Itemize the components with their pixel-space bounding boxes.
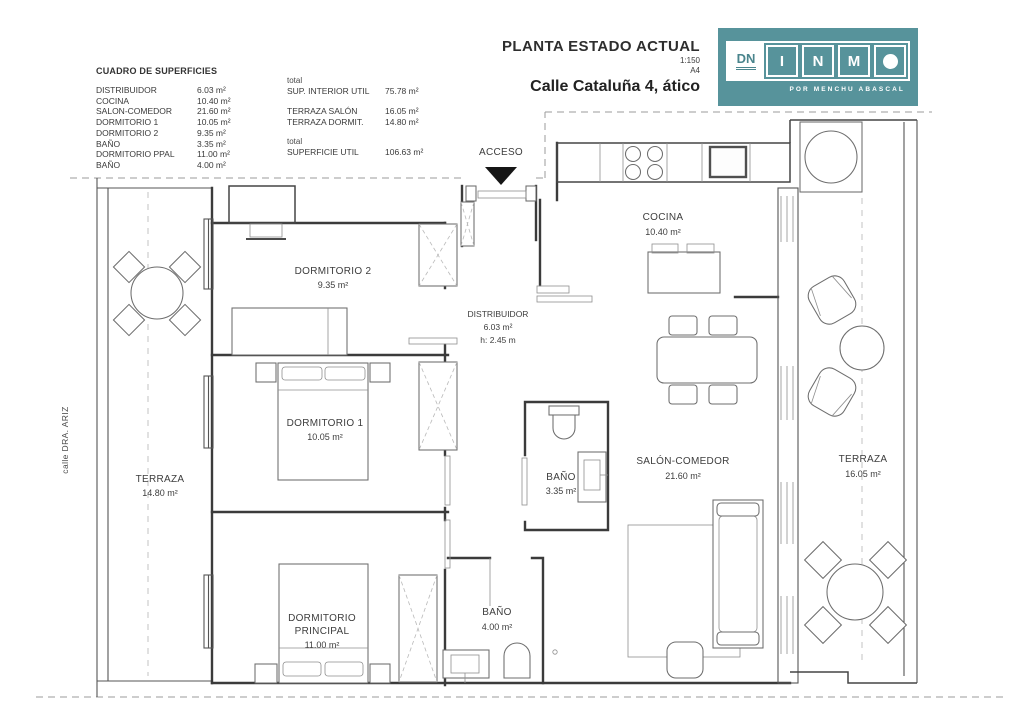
wardrobe-icon — [409, 224, 457, 344]
acceso-entry: ACCESO — [461, 147, 536, 246]
door-leaf — [522, 458, 527, 505]
room-area: 6.03 m² — [484, 322, 513, 332]
door-leaf — [445, 520, 450, 568]
room-height: h: 2.45 m — [480, 335, 515, 345]
room-dormitorio-2: DORMITORIO 2 9.35 m² — [232, 224, 457, 355]
dining-table-icon — [657, 316, 757, 404]
kitchen-island-icon — [648, 244, 720, 293]
room-label: BAÑO — [546, 470, 576, 483]
kitchen-sink-icon — [710, 147, 746, 177]
toilet-icon — [549, 406, 579, 439]
nightstand-icon — [370, 363, 390, 382]
entry-door-icon — [478, 191, 526, 198]
room-label: PRINCIPAL — [295, 626, 350, 637]
stove-icon — [626, 147, 663, 180]
door-jamb — [526, 186, 536, 201]
room-label: TERRAZA — [839, 454, 888, 465]
acceso-label: ACCESO — [479, 147, 523, 158]
sofa-icon — [713, 500, 763, 648]
acceso-arrow-icon — [485, 167, 517, 185]
room-salon-comedor: SALÓN-COMEDOR 21.60 m² — [628, 316, 763, 678]
room-bano-1: BAÑO 3.35 m² — [522, 406, 608, 505]
room-area: 21.60 m² — [665, 471, 701, 481]
nightstand-icon — [255, 664, 277, 683]
room-area: 9.35 m² — [318, 280, 349, 290]
door-leaf — [445, 456, 450, 505]
round-table-icon — [113, 251, 200, 335]
sink-icon — [443, 650, 489, 683]
nightstand-icon — [370, 664, 390, 683]
room-label: SALÓN-COMEDOR — [636, 454, 729, 467]
room-area: 14.80 m² — [142, 488, 178, 498]
room-area: 3.35 m² — [546, 486, 577, 496]
room-label: TERRAZA — [136, 474, 185, 485]
bed-icon — [232, 308, 347, 355]
nightstand-icon — [256, 363, 276, 382]
room-cocina: COCINA 10.40 m² — [557, 143, 790, 293]
room-label: DISTRIBUIDOR — [468, 309, 529, 319]
floor-plan-drawing: calle DRA. ARIZ TERRAZA 14.80 m² — [0, 0, 1024, 724]
room-distribuidor: DISTRIBUIDOR 6.03 m² h: 2.45 m — [468, 286, 592, 345]
room-area: 10.40 m² — [645, 227, 681, 237]
room-dormitorio-1: DORMITORIO 1 10.05 m² — [256, 362, 457, 505]
room-label: DORMITORIO 1 — [287, 418, 364, 429]
sink-icon — [578, 452, 608, 502]
round-table-icon — [805, 542, 907, 644]
wardrobe-icon — [399, 575, 437, 682]
room-label: DORMITORIO 2 — [295, 266, 372, 277]
room-area: 11.00 m² — [305, 640, 340, 650]
door-jamb — [466, 186, 476, 201]
room-dormitorio-principal: DORMITORIO PRINCIPAL 11.00 m² — [255, 520, 450, 683]
room-label: BAÑO — [482, 605, 512, 618]
wardrobe-icon — [419, 362, 457, 450]
washing-machine-icon — [800, 122, 862, 192]
terraza-salon: TERRAZA 16.05 m² — [790, 120, 917, 683]
floor-plan-sheet: CUADRO DE SUPERFICIES DISTRIBUIDOR6.03 m… — [0, 0, 1024, 724]
room-label: COCINA — [643, 212, 684, 223]
side-table-icon — [840, 326, 884, 370]
street-label: calle DRA. ARIZ — [60, 406, 70, 473]
terraza-dormitorios: TERRAZA 14.80 m² — [97, 178, 212, 697]
glazed-wall — [778, 188, 798, 683]
kitchen-counter-icon — [557, 143, 790, 182]
desk-icon — [246, 224, 286, 239]
room-label: DORMITORIO — [288, 613, 356, 624]
lounge-chair-icon — [804, 272, 860, 328]
room-area: 4.00 m² — [482, 622, 513, 632]
lounge-chair-icon — [804, 364, 860, 420]
room-area: 16.05 m² — [845, 469, 881, 479]
room-bano-2: BAÑO 4.00 m² — [443, 558, 557, 683]
pouf-icon — [667, 642, 703, 678]
room-area: 10.05 m² — [307, 432, 343, 442]
bench-icon — [537, 296, 592, 302]
hall-wardrobe-icon — [461, 202, 474, 246]
toilet-icon — [504, 643, 530, 678]
drain-icon — [553, 650, 557, 654]
bench-icon — [537, 286, 569, 293]
